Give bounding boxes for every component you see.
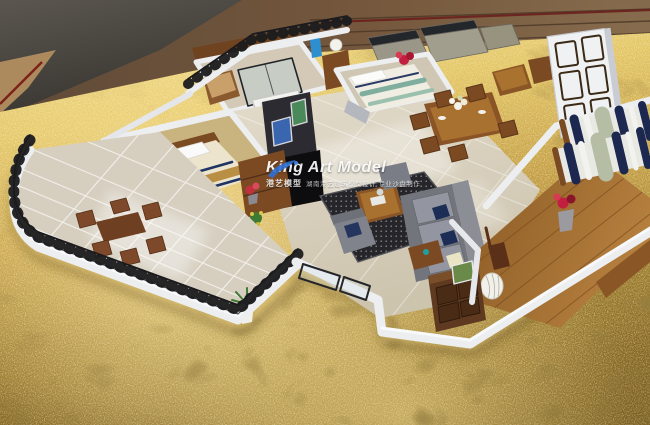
coffee-table-vase (377, 189, 384, 196)
tv-cabinet (238, 150, 292, 218)
table-dish-2 (478, 110, 486, 114)
teal-bottle (423, 249, 429, 255)
desk-screen (310, 38, 322, 58)
woven-lamp (481, 273, 503, 299)
model-photo-scene (0, 0, 650, 425)
wall-art-blue (272, 117, 292, 146)
desk-lamp (330, 39, 342, 51)
wall-art-green (291, 99, 307, 126)
table-dish-1 (438, 116, 446, 120)
photo-screenshot: King Art Model 港艺模型湖南港艺建筑模型设计 专业沙盘制作 (0, 0, 650, 425)
